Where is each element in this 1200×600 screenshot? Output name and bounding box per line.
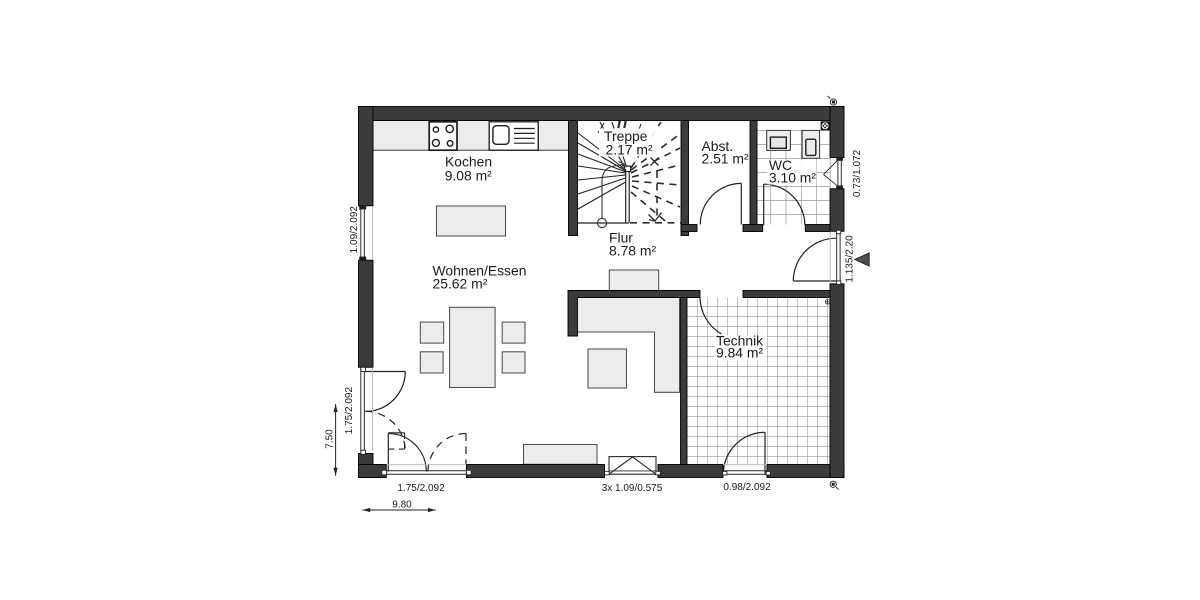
svg-text:2.51 m²: 2.51 m² (702, 151, 749, 167)
svg-text:3.10 m²: 3.10 m² (769, 170, 816, 186)
svg-text:25.62 m²: 25.62 m² (433, 275, 488, 291)
svg-text:2.17 m²: 2.17 m² (606, 142, 653, 158)
svg-text:0.98/2.092: 0.98/2.092 (723, 482, 771, 493)
svg-text:1.75/2.092: 1.75/2.092 (344, 387, 355, 435)
svg-text:3x 1.09/0.575: 3x 1.09/0.575 (602, 483, 663, 494)
svg-text:1.75/2.092: 1.75/2.092 (397, 483, 445, 494)
svg-text:1.135/2.20: 1.135/2.20 (844, 235, 855, 283)
svg-text:7.50: 7.50 (324, 429, 335, 449)
svg-text:1.09/2.092: 1.09/2.092 (349, 206, 360, 254)
svg-text:9.84 m²: 9.84 m² (716, 345, 763, 361)
svg-text:0.73/1.072: 0.73/1.072 (852, 149, 863, 197)
svg-text:8.78 m²: 8.78 m² (609, 243, 656, 259)
svg-text:9.80: 9.80 (392, 499, 412, 510)
svg-text:9.08 m²: 9.08 m² (445, 168, 492, 184)
